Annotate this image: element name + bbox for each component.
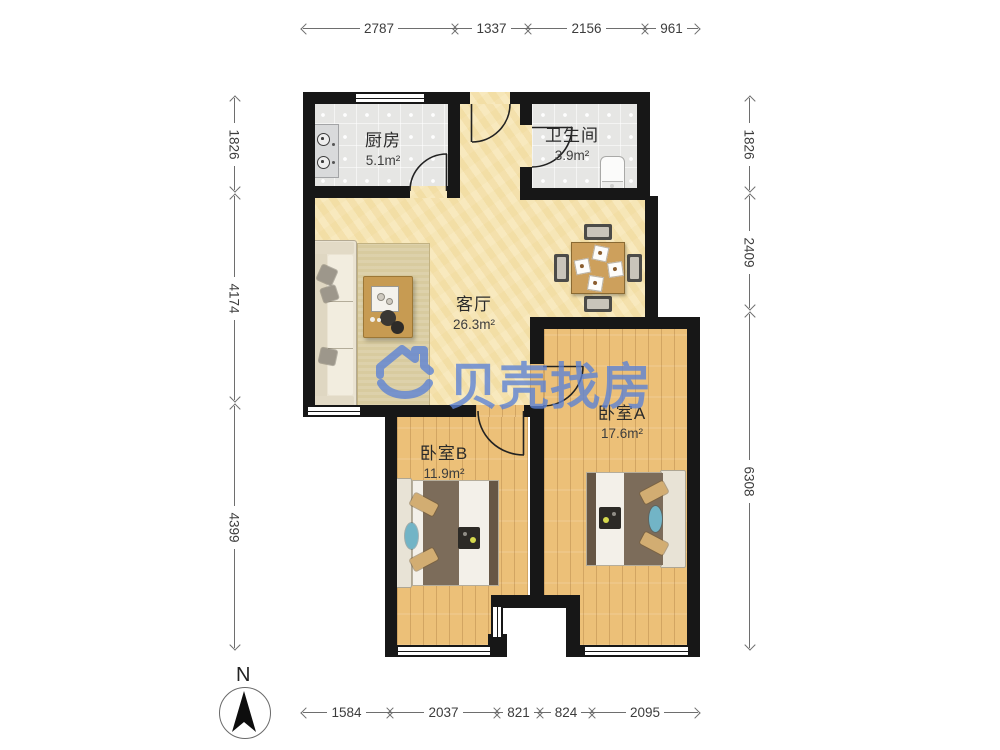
- wall: [530, 317, 700, 329]
- light-well-window: [491, 607, 503, 637]
- north-label: N: [236, 664, 250, 687]
- living-room-window: [308, 405, 360, 417]
- dimension-label: 2095: [626, 705, 664, 720]
- bed-b: [412, 480, 499, 586]
- dimension-label: 1826: [742, 129, 757, 159]
- room-name: 客厅: [453, 295, 495, 315]
- dimension-label: 2156: [567, 21, 605, 36]
- dining-table: [571, 242, 625, 294]
- room-area: 11.9m²: [420, 466, 468, 482]
- room-area: 26.3m²: [453, 317, 495, 333]
- dimension-top: 961: [645, 20, 698, 36]
- dimension-right: 1826: [741, 98, 757, 190]
- room-area: 5.1m²: [365, 153, 401, 169]
- sofa: [311, 240, 357, 410]
- dimension-label: 821: [503, 705, 534, 720]
- wall: [637, 92, 650, 200]
- bed-a-cushion: [649, 506, 662, 532]
- cup: [391, 321, 404, 334]
- sofa-pillow: [319, 348, 338, 366]
- burner: [317, 133, 330, 146]
- kitchen-window: [356, 92, 424, 104]
- dimension-bottom: 821: [497, 704, 540, 720]
- dining-chair: [584, 224, 612, 240]
- entry-door-opening: [470, 92, 510, 104]
- dimension-label: 2787: [360, 21, 398, 36]
- dimension-label: 961: [656, 21, 687, 36]
- wall: [520, 188, 650, 200]
- room-area: 3.9m²: [545, 148, 599, 164]
- room-label-bathroom: 卫生间 3.9m²: [545, 126, 599, 163]
- coffee-table: [363, 276, 413, 338]
- beike-logo-icon: [368, 338, 442, 406]
- dining-chair: [554, 254, 569, 282]
- dimension-left: 4174: [226, 196, 242, 400]
- wall: [448, 92, 460, 198]
- dimension-bottom: 2095: [592, 704, 698, 720]
- wall: [385, 405, 397, 657]
- bed-a: [586, 472, 662, 566]
- placemat: [587, 275, 604, 292]
- dimension-label: 1337: [472, 21, 510, 36]
- dimension-top: 1337: [455, 20, 528, 36]
- bedroom-a-window: [585, 645, 688, 657]
- toilet: [600, 156, 625, 192]
- kitchen-door-opening: [410, 186, 447, 198]
- dimension-bottom: 824: [540, 704, 592, 720]
- placemat: [607, 261, 624, 278]
- dimension-label: 2409: [742, 237, 757, 267]
- bathroom-door-opening: [520, 125, 532, 167]
- dimension-label: 4174: [227, 283, 242, 313]
- bed-a-tray: [599, 507, 621, 529]
- bed-b-duvet: [423, 481, 459, 585]
- room-name: 卫生间: [545, 126, 599, 146]
- room-name: 厨房: [365, 131, 401, 151]
- wall: [303, 92, 315, 417]
- bedroom-b-window: [398, 645, 490, 657]
- dimension-label: 824: [551, 705, 582, 720]
- burner: [317, 156, 330, 169]
- tray: [371, 286, 399, 312]
- dimension-label: 4399: [227, 512, 242, 542]
- north-arrow-icon: [219, 687, 269, 737]
- dimension-label: 2037: [424, 705, 462, 720]
- dimension-right: 2409: [741, 196, 757, 308]
- dimension-right: 6308: [741, 314, 757, 648]
- room-area: 17.6m²: [598, 426, 646, 442]
- dimension-top: 2156: [528, 20, 645, 36]
- dining-chair: [584, 296, 612, 312]
- room-label-kitchen: 厨房 5.1m²: [365, 131, 401, 168]
- wall: [566, 595, 580, 657]
- dimension-top: 2787: [303, 20, 455, 36]
- bed-b-cushion: [405, 523, 418, 549]
- dimension-label: 6308: [742, 466, 757, 496]
- dimension-bottom: 1584: [303, 704, 390, 720]
- dimension-label: 1584: [327, 705, 365, 720]
- wall: [645, 196, 658, 325]
- watermark-text: 贝壳找房: [448, 347, 652, 419]
- dimension-label: 1826: [227, 129, 242, 159]
- floor-plan-canvas: 厨房 5.1m² 卫生间 3.9m² 客厅 26.3m² 卧室A 17.6m² …: [0, 0, 1000, 750]
- bed-b-tray: [458, 527, 480, 549]
- placemat: [574, 258, 592, 276]
- dimension-bottom: 2037: [390, 704, 497, 720]
- dimension-left: 4399: [226, 406, 242, 648]
- dining-chair: [627, 254, 642, 282]
- stove: [312, 124, 339, 178]
- wall: [687, 317, 700, 657]
- sofa-armrest-top: [314, 242, 354, 254]
- placemat: [592, 245, 610, 263]
- room-name: 卧室B: [420, 444, 468, 464]
- room-label-bedroom-b: 卧室B 11.9m²: [420, 444, 468, 481]
- dimension-left: 1826: [226, 98, 242, 190]
- room-label-living: 客厅 26.3m²: [453, 295, 495, 332]
